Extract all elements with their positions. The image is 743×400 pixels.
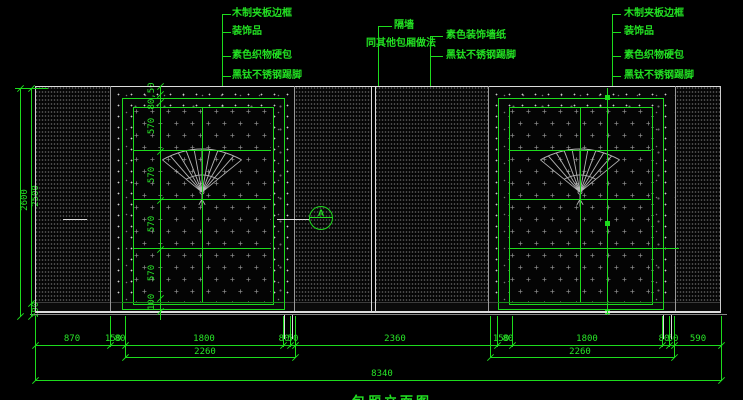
partition-line-left <box>371 86 372 311</box>
dim-door-row1: 570 <box>147 104 157 148</box>
ext <box>662 316 663 347</box>
ext <box>512 316 513 347</box>
door2-skirt-line <box>498 302 662 303</box>
wall-right-edge <box>720 86 721 313</box>
dim-height-upper: 2500 <box>31 174 41 218</box>
label-skirting-right: 黑钛不锈钢踢脚 <box>624 70 694 82</box>
dim-tick <box>671 354 678 361</box>
ext <box>283 316 284 347</box>
leader-tick <box>612 14 621 15</box>
dim-1800-left: 1800 <box>193 334 215 344</box>
wall-section-middle-left <box>295 86 371 302</box>
floor-line <box>35 311 721 313</box>
dim-door-row2: 570 <box>147 153 157 197</box>
dim-2360: 2360 <box>384 334 406 344</box>
dim-height-total: 2600 <box>20 178 30 222</box>
leader-tick <box>222 56 231 57</box>
wall-left-edge <box>35 86 36 313</box>
ground-line <box>30 314 727 315</box>
wall-section-right <box>676 86 721 302</box>
ext <box>35 316 36 381</box>
ext <box>497 316 498 347</box>
door2-grid-center <box>580 108 581 302</box>
dim-door-row3: 570 <box>147 202 157 246</box>
drawing-title: 包厢立面图 <box>352 391 432 400</box>
leader-tick <box>378 26 392 27</box>
label-wallpaper: 素色装饰墙纸 <box>446 30 506 42</box>
label-fabric-right: 素色织物硬包 <box>624 50 684 62</box>
ext <box>669 316 670 347</box>
section-divider <box>488 86 489 311</box>
dim-total-width: 8340 <box>371 369 393 379</box>
section-marker-a: A <box>309 206 333 230</box>
label-partition: 隔墙 <box>394 20 414 32</box>
dim-tick <box>292 354 299 361</box>
door1-grid-center <box>202 108 203 302</box>
label-skirting-left: 黑钛不锈钢踢脚 <box>232 70 302 82</box>
dim-2260-right: 2260 <box>569 347 591 357</box>
partition-line-right <box>375 86 376 311</box>
centerline-tick-left <box>63 219 87 220</box>
label-decoration-right: 装饰品 <box>624 26 654 38</box>
wall-section-left <box>35 86 110 302</box>
ext <box>110 316 111 347</box>
label-partition-note: 同其他包厢做法 <box>366 38 436 50</box>
ext <box>290 316 291 347</box>
dim-tick <box>17 313 24 320</box>
label-skirting-middle: 黑钛不锈钢踢脚 <box>446 50 516 62</box>
leader-partition <box>378 26 379 86</box>
dim-1800-right: 1800 <box>576 334 598 344</box>
leader-tick <box>430 56 443 57</box>
dimline-2600 <box>20 88 21 317</box>
dimline-2500 <box>31 88 32 316</box>
dim-80-left-a: 80 <box>115 334 126 344</box>
wall-top-line <box>35 86 721 87</box>
dim-height-skirting: 100 <box>31 288 41 332</box>
leader-wallpaper <box>430 36 431 86</box>
door2-selected-centerline <box>607 88 608 315</box>
leader-tick <box>222 76 231 77</box>
door1-dim-chain-line <box>160 86 161 320</box>
label-wood-frame-left: 木制夹板边框 <box>232 8 292 20</box>
frame-ext-white <box>292 315 293 339</box>
dimline-row2-right <box>490 357 674 358</box>
door2-extended-rail-line <box>509 248 679 249</box>
ext <box>721 316 722 381</box>
section-divider <box>110 86 111 311</box>
leader-tick <box>612 76 621 77</box>
ext <box>125 316 126 358</box>
section-divider <box>294 86 295 311</box>
cad-drawing-canvas[interactable]: ++++++++++++++++++++++++++++++++++++++++… <box>0 0 743 400</box>
dimline-row1 <box>35 345 721 346</box>
ext <box>490 316 491 358</box>
label-fabric-left: 素色织物硬包 <box>232 50 292 62</box>
leader-tick <box>222 32 231 33</box>
wall-section-middle-right <box>375 86 488 302</box>
label-decoration-left: 装饰品 <box>232 26 262 38</box>
frame-ext-white <box>663 315 664 339</box>
dim-2260-left: 2260 <box>194 347 216 357</box>
section-divider <box>675 86 676 311</box>
dim-590: 590 <box>690 334 706 344</box>
frame-ext-white <box>671 315 672 339</box>
dimline-row3 <box>35 380 721 381</box>
leader-to-marker-a <box>277 219 309 220</box>
leader-tick <box>430 36 443 37</box>
dimline-row2-left <box>125 357 295 358</box>
leader-tick <box>222 14 231 15</box>
ext <box>674 316 675 358</box>
marker-letter: A <box>310 208 332 218</box>
door1-skirt-line <box>122 302 283 303</box>
frame-ext-white <box>284 315 285 339</box>
dim-870-left: 870 <box>64 334 80 344</box>
leader-tick <box>612 32 621 33</box>
label-wood-frame-right: 木制夹板边框 <box>624 8 684 20</box>
dim-tick <box>718 377 725 384</box>
leader-tick <box>612 56 621 57</box>
ext <box>295 316 296 358</box>
